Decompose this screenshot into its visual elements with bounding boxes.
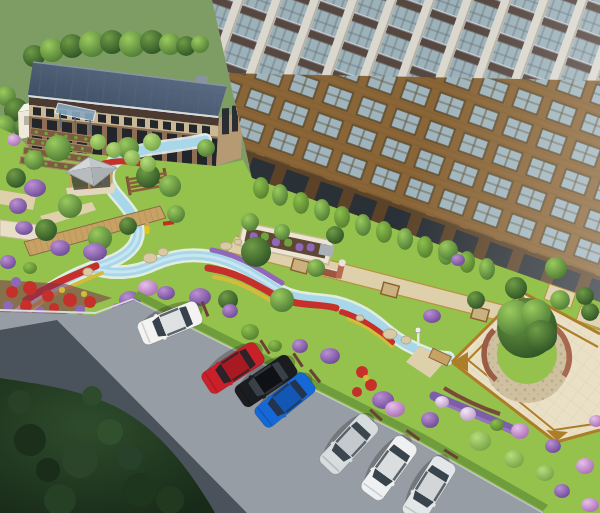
person-figure [145, 222, 150, 234]
plaza-tree [497, 298, 557, 358]
rendering-canvas [0, 0, 600, 513]
landscape-rendering [0, 0, 600, 513]
